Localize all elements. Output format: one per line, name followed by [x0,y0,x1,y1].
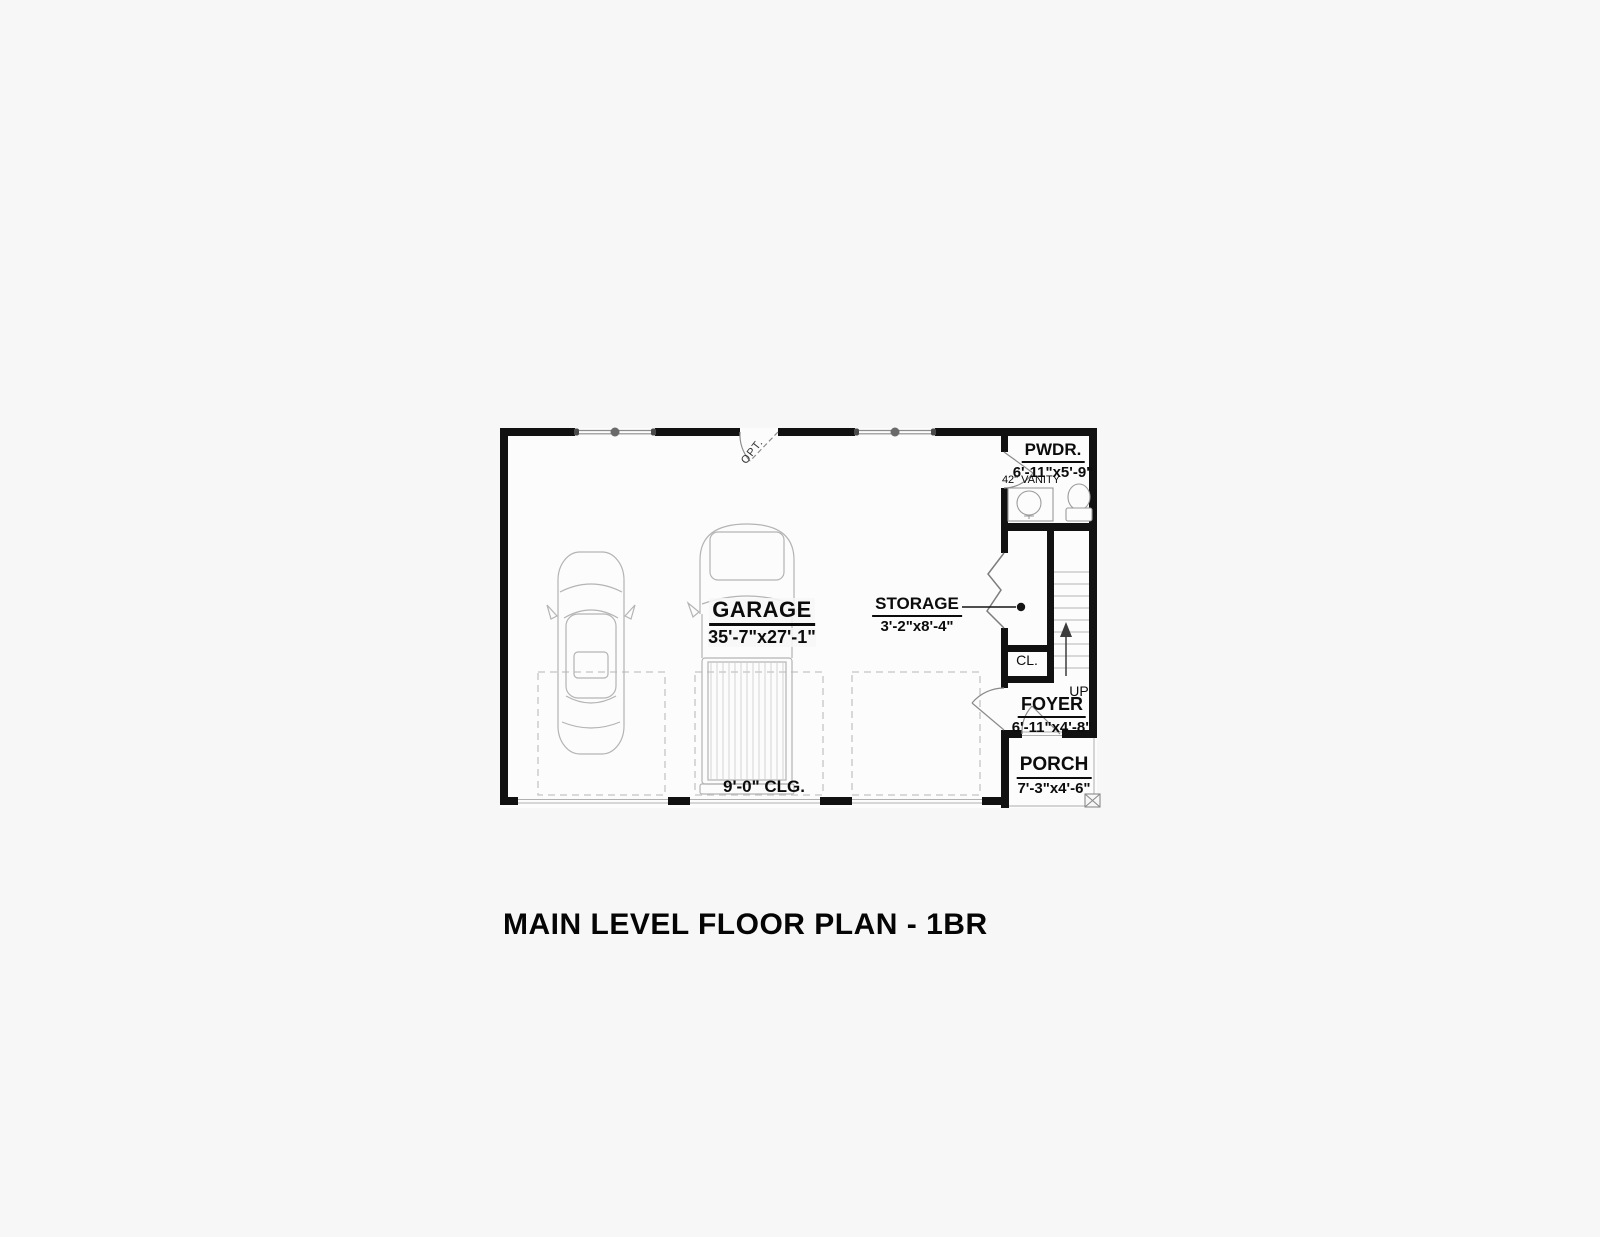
garage-label-group: GARAGE 35'-7"x27'-1" [708,598,816,647]
foyer-label: FOYER [1018,695,1086,718]
foyer-label-group: FOYER 6'-11"x4'-8" [1012,695,1093,736]
storage-label: STORAGE [872,595,962,617]
garage-ceiling-note: 9'-0" CLG. [723,778,805,796]
closet-label: CL. [1016,653,1038,668]
porch-dims: 7'-3"x4'-6" [1017,781,1092,797]
porch-label: PORCH [1017,755,1092,779]
porch-label-group: PORCH 7'-3"x4'-6" [1017,755,1092,797]
floor-plan-sheet: GARAGE 35'-7"x27'-1" 9'-0" CLG. PWDR. 6'… [0,0,1600,1237]
plan-title: MAIN LEVEL FLOOR PLAN - 1BR [503,908,988,942]
storage-label-group: STORAGE 3'-2"x8'-4" [872,595,962,635]
garage-label: GARAGE [709,598,815,626]
toilet-icon [1066,484,1092,521]
storage-dims: 3'-2"x8'-4" [872,619,962,635]
foyer-dims: 6'-11"x4'-8" [1012,720,1093,736]
vanity-note: 42" VANITY [1002,475,1060,487]
garage-dims: 35'-7"x27'-1" [708,628,816,647]
powder-label: PWDR. [1022,441,1085,463]
